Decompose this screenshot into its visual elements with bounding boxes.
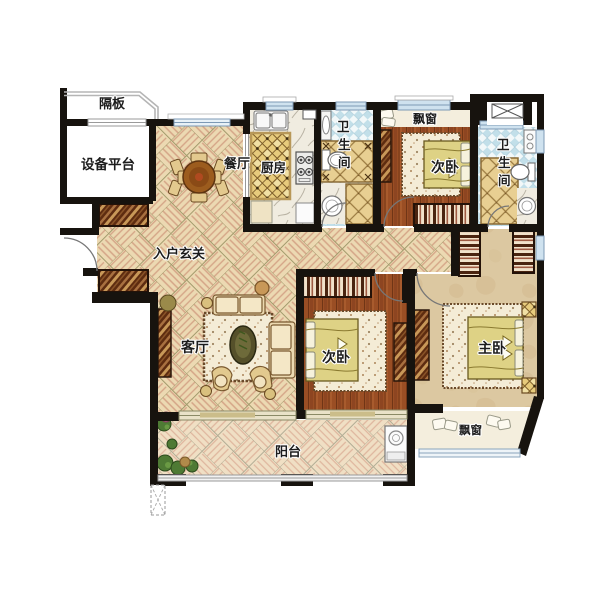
svg-text:生: 生 [498, 155, 511, 170]
svg-text:卫: 卫 [497, 138, 510, 152]
svg-text:阳台: 阳台 [275, 444, 301, 459]
svg-text:卫: 卫 [337, 120, 350, 134]
svg-text:客厅: 客厅 [180, 339, 209, 355]
svg-text:入户玄关: 入户玄关 [153, 246, 205, 261]
svg-text:飘窗: 飘窗 [459, 423, 482, 437]
svg-text:餐厅: 餐厅 [223, 156, 250, 171]
svg-text:间: 间 [498, 173, 511, 188]
svg-text:主卧: 主卧 [478, 340, 506, 356]
svg-text:次卧: 次卧 [322, 349, 350, 365]
svg-text:飘窗: 飘窗 [413, 111, 437, 126]
svg-text:生: 生 [338, 137, 351, 152]
svg-text:次卧: 次卧 [431, 159, 459, 175]
svg-text:厨房: 厨房 [261, 160, 286, 175]
svg-text:设备平台: 设备平台 [81, 156, 135, 172]
svg-text:间: 间 [338, 155, 351, 170]
svg-text:隔板: 隔板 [99, 96, 126, 111]
